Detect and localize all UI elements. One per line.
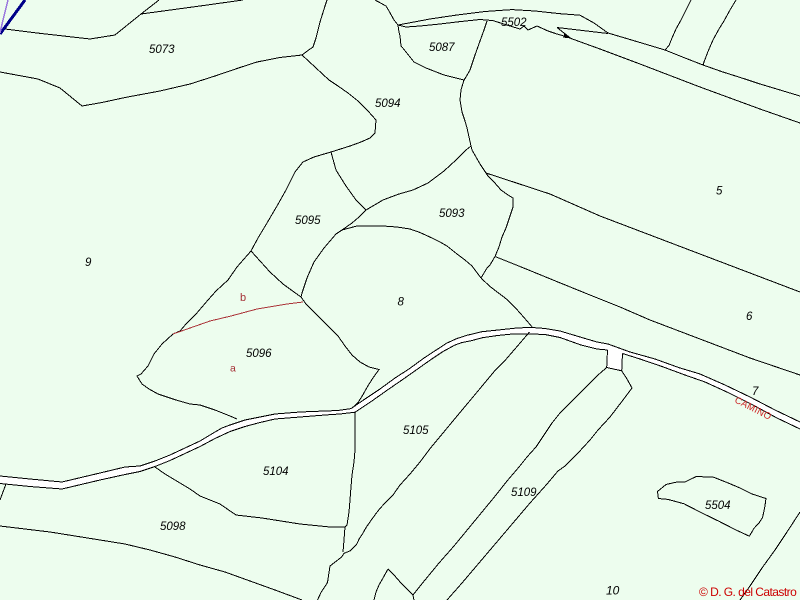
svg-text:5: 5 bbox=[716, 186, 723, 198]
svg-text:5095: 5095 bbox=[295, 215, 321, 227]
svg-text:© D. G. del Catastro: © D. G. del Catastro bbox=[699, 585, 797, 599]
svg-text:5087: 5087 bbox=[429, 42, 455, 54]
svg-text:5109: 5109 bbox=[511, 487, 537, 499]
svg-text:5502: 5502 bbox=[501, 17, 527, 29]
svg-text:5093: 5093 bbox=[439, 208, 465, 220]
svg-text:b: b bbox=[240, 292, 246, 304]
svg-text:5098: 5098 bbox=[160, 521, 186, 533]
svg-text:a: a bbox=[230, 363, 236, 375]
svg-text:5504: 5504 bbox=[705, 500, 731, 512]
svg-text:5105: 5105 bbox=[403, 425, 429, 437]
svg-text:10: 10 bbox=[606, 584, 620, 598]
svg-text:5094: 5094 bbox=[375, 98, 401, 110]
svg-text:9: 9 bbox=[85, 257, 92, 269]
svg-text:5096: 5096 bbox=[246, 348, 272, 360]
svg-text:7: 7 bbox=[752, 386, 759, 398]
svg-text:8: 8 bbox=[398, 297, 405, 309]
svg-text:5104: 5104 bbox=[263, 466, 289, 478]
svg-text:5073: 5073 bbox=[149, 44, 175, 56]
svg-text:6: 6 bbox=[746, 311, 753, 323]
